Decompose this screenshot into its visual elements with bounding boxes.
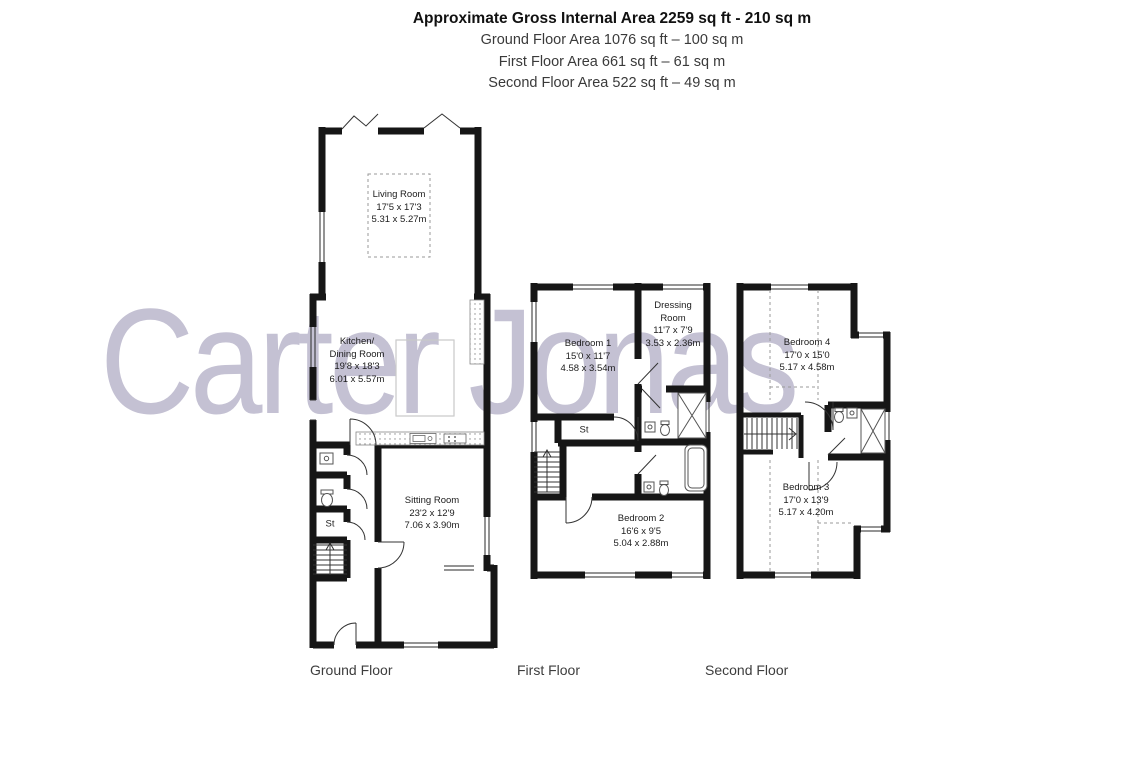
roofline-chevron-icon: [342, 114, 460, 129]
second-floor-area-line: Second Floor Area 522 sq ft – 49 sq m: [413, 73, 811, 95]
wc-toilet-icon: [321, 490, 333, 507]
second-shower-icon: [861, 409, 885, 453]
first-stairs: [534, 450, 560, 492]
caption-first-floor: First Floor: [517, 662, 580, 678]
ground-stairs: [313, 543, 347, 575]
ensuite-toilet-icon: [661, 421, 670, 436]
ensuite-sink-icon: [645, 422, 655, 432]
room-label-sitting: Sitting Room 23'2 x 12'9 7.06 x 3.90m: [405, 495, 460, 533]
caption-second-floor: Second Floor: [705, 662, 788, 678]
second-stairs: [744, 418, 797, 449]
bathroom-sink-icon: [644, 482, 654, 492]
caption-ground-floor: Ground Floor: [310, 662, 392, 678]
room-label-bedroom3: Bedroom 3 17'0 x 13'9 5.17 x 4.20m: [779, 482, 834, 520]
second-toilet-icon: [835, 408, 844, 423]
ground-windows: [311, 212, 489, 647]
kitchen-table-outline: [396, 340, 454, 416]
room-label-living: Living Room 17'5 x 17'3 5.31 x 5.27m: [372, 189, 427, 227]
second-floor-plan: [723, 272, 908, 587]
gross-area-title: Approximate Gross Internal Area 2259 sq …: [413, 8, 811, 30]
floorplan-page: Carter Jonas Approximate Gross Internal …: [0, 0, 1136, 769]
room-label-bedroom1: Bedroom 1 15'0 x 11'7 4.58 x 3.54m: [561, 338, 616, 376]
room-label-bedroom2: Bedroom 2 16'6 x 9'5 5.04 x 2.88m: [614, 513, 669, 551]
room-label-kitchen: Kitchen/ Dining Room 19'8 x 18'3 6.01 x …: [330, 336, 385, 386]
ground-floor-area-line: Ground Floor Area 1076 sq ft – 100 sq m: [413, 30, 811, 52]
utility-sink-icon: [320, 453, 333, 464]
ensuite-shower-icon: [678, 393, 706, 438]
area-header: Approximate Gross Internal Area 2259 sq …: [413, 8, 811, 95]
second-sink-icon: [847, 408, 857, 418]
bathtub-icon: [685, 445, 707, 491]
room-label-dressing: Dressing Room 11'7 x 7'9 3.53 x 2.36m: [646, 300, 701, 350]
reduced-headroom-lines: [770, 290, 854, 572]
store-label-ground: St: [326, 519, 335, 530]
room-label-bedroom4: Bedroom 4 17'0 x 15'0 5.17 x 4.58m: [780, 337, 835, 375]
first-floor-area-line: First Floor Area 661 sq ft – 61 sq m: [413, 52, 811, 74]
store-label-first: St: [580, 425, 589, 436]
bathroom-toilet-icon: [660, 481, 669, 496]
